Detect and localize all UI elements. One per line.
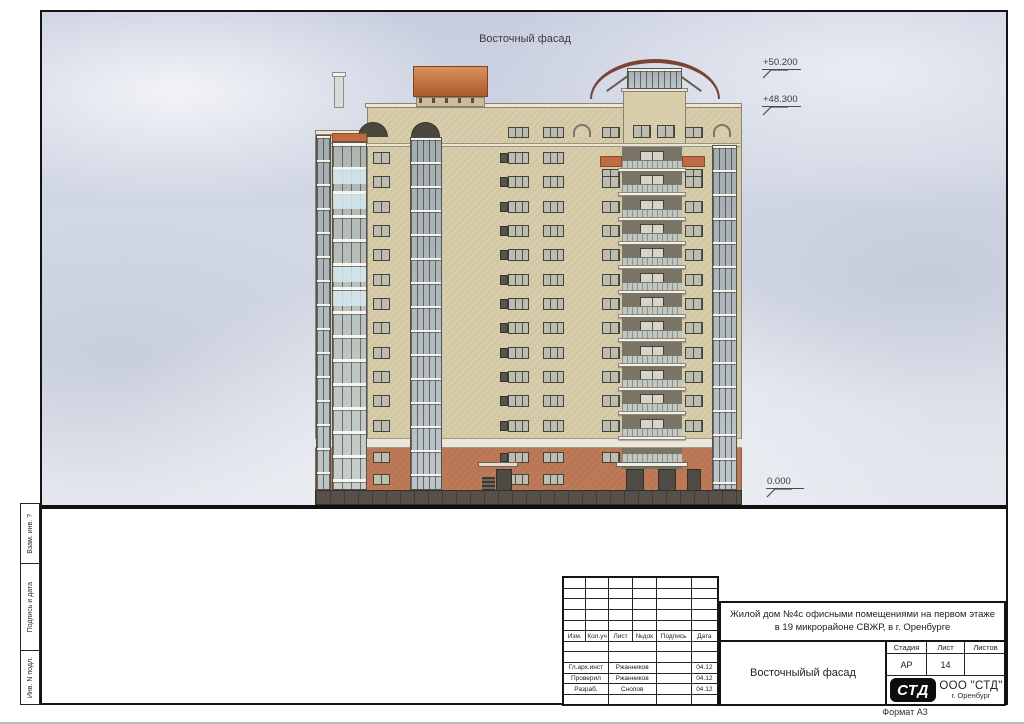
entrance-balcony-railing [622, 454, 682, 462]
signature-table-cell: №док [633, 631, 656, 642]
signature-table-cell [657, 578, 692, 589]
window [602, 371, 620, 383]
window [543, 322, 564, 334]
window [500, 202, 508, 212]
company-logo: СТД [890, 678, 936, 702]
window [685, 225, 703, 237]
window [602, 274, 620, 286]
window [602, 322, 620, 334]
window [543, 371, 564, 383]
signature-table-cell [586, 599, 608, 610]
window [373, 395, 390, 407]
window [373, 225, 390, 237]
signature-table-cell [657, 610, 692, 621]
window [508, 225, 529, 237]
balcony-railing [622, 330, 682, 338]
balcony-railing [622, 233, 682, 241]
sheet-number: 14 [927, 654, 965, 676]
sheets-total [965, 654, 1006, 676]
window [508, 152, 529, 164]
window [685, 395, 703, 407]
window [508, 127, 529, 138]
accent-panel [600, 156, 622, 167]
signature-table-cell [564, 589, 586, 600]
window [543, 225, 564, 237]
signature-table-cell: Лист [609, 631, 633, 642]
stamp-cell-inv: Инв. N подл. [21, 651, 39, 704]
window [685, 176, 703, 188]
company-city: г. Оренбург [936, 692, 1006, 700]
window [500, 299, 508, 309]
window [373, 298, 390, 310]
window [508, 249, 529, 261]
entrance-canopy [616, 462, 688, 467]
signature-table-cell [586, 578, 608, 589]
level-mark-icon [762, 106, 788, 116]
window [685, 127, 703, 138]
window [500, 275, 508, 285]
window [508, 420, 529, 432]
balcony-railing [622, 282, 682, 290]
window [543, 152, 564, 164]
window [373, 249, 390, 261]
entrance-canopy [478, 462, 518, 467]
window [508, 395, 529, 407]
window [685, 201, 703, 213]
signature-table-cell [564, 610, 586, 621]
signature-table-cell: Гл.арх.инст [564, 663, 609, 674]
window [543, 176, 564, 188]
window [543, 474, 564, 485]
window [543, 127, 564, 138]
window [543, 420, 564, 432]
window [500, 348, 508, 358]
signature-table-cell [564, 578, 586, 589]
signature-table-cell [692, 652, 717, 663]
signature-table-row: Изм.Кол.учЛист№докПодписьДата [564, 631, 717, 642]
stage-value: АР [887, 654, 927, 676]
signature-table-cell: 04.12 [692, 674, 717, 685]
ground-line [42, 505, 1006, 509]
signature-table-cell [692, 599, 717, 610]
signature-table-cell [609, 610, 633, 621]
window [657, 125, 675, 138]
signature-table: Изм.Кол.учЛист№докПодписьДатаГл.арх.инст… [562, 576, 719, 706]
balcony-slab [618, 436, 686, 440]
company-row: СТД ООО "СТД" г. Оренбург [887, 676, 1006, 704]
level-mark-roof: +50.200 [762, 57, 801, 79]
signature-table-cell [609, 589, 633, 600]
signature-table-row [564, 599, 717, 610]
window [602, 201, 620, 213]
signature-table-cell [692, 589, 717, 600]
balcony-railing [622, 160, 682, 168]
signature-table-row [564, 695, 717, 706]
signature-table-cell [657, 589, 692, 600]
window [685, 274, 703, 286]
window [543, 201, 564, 213]
signature-table-cell: 04.12 [692, 663, 717, 674]
window [500, 396, 508, 406]
signature-table-cell [657, 621, 692, 632]
window [602, 298, 620, 310]
signature-table-cell [657, 652, 692, 663]
window [685, 347, 703, 359]
signature-table-cell [609, 599, 633, 610]
window [373, 474, 390, 485]
signature-table-cell [692, 621, 717, 632]
window [373, 420, 390, 432]
signature-table-cell [692, 610, 717, 621]
window [373, 452, 390, 463]
balcony-railing [622, 403, 682, 411]
drawing-title: Восточный фасад [450, 33, 600, 45]
signature-table-cell [633, 599, 656, 610]
signature-table-cell [586, 589, 608, 600]
signature-table-row [564, 652, 717, 663]
window [500, 372, 508, 382]
sheets-label: Листов [965, 642, 1006, 654]
glass-panel [333, 291, 366, 306]
signature-table-cell [633, 610, 656, 621]
window [500, 323, 508, 333]
level-mark-icon [766, 488, 792, 498]
window [508, 371, 529, 383]
balcony-railing [622, 428, 682, 436]
signature-table-row [564, 610, 717, 621]
signature-table-cell [692, 578, 717, 589]
signature-table-cell: Кол.уч [586, 631, 608, 642]
sheet-label: Лист [927, 642, 965, 654]
signature-table-cell: Разраб. [564, 684, 609, 695]
accent-panel [682, 156, 705, 167]
window [508, 298, 529, 310]
signature-table-row [564, 578, 717, 589]
stage-label: Стадия [887, 642, 927, 654]
window [373, 371, 390, 383]
format-label: Формат А3 [830, 707, 980, 717]
signature-table-cell [633, 578, 656, 589]
signature-table-cell [564, 599, 586, 610]
signature-table-cell [657, 663, 692, 674]
level-mark-ground: 0.000 [766, 476, 804, 498]
signature-table-cell [609, 695, 657, 706]
glass-panel [333, 267, 366, 282]
window [602, 395, 620, 407]
window [508, 322, 529, 334]
window [543, 452, 564, 463]
window [633, 125, 651, 138]
signature-table-cell: Подпись [657, 631, 692, 642]
window [685, 371, 703, 383]
level-mark-icon [762, 69, 788, 79]
signature-table-cell [564, 621, 586, 632]
balcony-railing [622, 306, 682, 314]
window [543, 249, 564, 261]
window [373, 201, 390, 213]
facade-windows-layer [315, 58, 742, 505]
signature-table-cell [609, 621, 633, 632]
window [543, 274, 564, 286]
signature-table-cell [564, 652, 609, 663]
signature-table-cell [692, 695, 717, 706]
signature-table-cell [657, 674, 692, 685]
signature-table-row: Разраб.Снопов04.12 [564, 684, 717, 695]
window [602, 249, 620, 261]
window [508, 201, 529, 213]
project-line1: Жилой дом №4с офисными помещениями на пе… [730, 609, 995, 622]
glass-panel [333, 169, 366, 184]
window [373, 176, 390, 188]
drawing-sheet: Восточный фасад [0, 0, 1024, 724]
window [543, 298, 564, 310]
balcony-railing [622, 355, 682, 363]
level-mark-parapet: +48.300 [762, 94, 801, 116]
glass-panel [333, 194, 366, 209]
window [685, 249, 703, 261]
window [685, 322, 703, 334]
window [500, 226, 508, 236]
signature-table-cell [633, 589, 656, 600]
signature-table-row: ПроверилРжанников04.12 [564, 674, 717, 685]
window [602, 347, 620, 359]
window [373, 347, 390, 359]
window [373, 322, 390, 334]
signature-table-cell: Снопов [609, 684, 657, 695]
signature-table-cell [657, 684, 692, 695]
signature-table-row: Гл.арх.инстРжанников04.12 [564, 663, 717, 674]
window [500, 250, 508, 260]
title-block: Жилой дом №4с офисными помещениями на пе… [719, 601, 1006, 706]
signature-table-cell: Ржанников [609, 663, 657, 674]
signature-table-cell: Изм. [564, 631, 586, 642]
window [500, 421, 508, 431]
sheet-title: Восточныйый фасад [721, 642, 887, 704]
signature-table-row [564, 621, 717, 632]
signature-table-cell [633, 621, 656, 632]
signature-table-cell: Ржанников [609, 674, 657, 685]
window [602, 176, 620, 188]
signature-table-cell [657, 695, 692, 706]
window [543, 347, 564, 359]
signature-table-cell [609, 578, 633, 589]
stamp-cell-podpis: Подпись и дата [21, 564, 39, 651]
window [500, 177, 508, 187]
signature-table-cell [657, 642, 692, 653]
balcony-railing [622, 257, 682, 265]
building-elevation [315, 58, 742, 505]
signature-table-cell [692, 642, 717, 653]
left-stamp-column: Взам. инв. ? Подпись и дата Инв. N подл. [20, 503, 40, 705]
signature-table-row [564, 642, 717, 653]
signature-table-cell [586, 610, 608, 621]
balcony-railing [622, 379, 682, 387]
window [685, 298, 703, 310]
stamp-cell-vzam: Взам. инв. ? [21, 504, 39, 564]
window [508, 347, 529, 359]
signature-table-cell [564, 642, 609, 653]
company-info: ООО "СТД" г. Оренбург [936, 680, 1006, 700]
window [508, 274, 529, 286]
signature-table-cell [586, 621, 608, 632]
window [373, 152, 390, 164]
signature-table-cell: Проверил [564, 674, 609, 685]
balcony-railing [622, 184, 682, 192]
signature-table-cell [609, 642, 657, 653]
project-name: Жилой дом №4с офисными помещениями на пе… [721, 603, 1004, 642]
signature-table-cell: 04.12 [692, 684, 717, 695]
project-line2: в 19 микрорайоне СВЖР, в г. Оренбурге [775, 622, 951, 635]
window [602, 127, 620, 138]
window [500, 453, 508, 462]
building-plinth [315, 490, 742, 505]
signature-table-cell: Дата [692, 631, 717, 642]
signature-table-cell [564, 695, 609, 706]
window [373, 274, 390, 286]
signature-table-cell [657, 599, 692, 610]
balcony-railing [622, 209, 682, 217]
window [500, 153, 508, 163]
window [508, 176, 529, 188]
window [602, 225, 620, 237]
window [543, 395, 564, 407]
window [685, 420, 703, 432]
window [602, 420, 620, 432]
signature-table-row [564, 589, 717, 600]
signature-table-cell [609, 652, 657, 663]
